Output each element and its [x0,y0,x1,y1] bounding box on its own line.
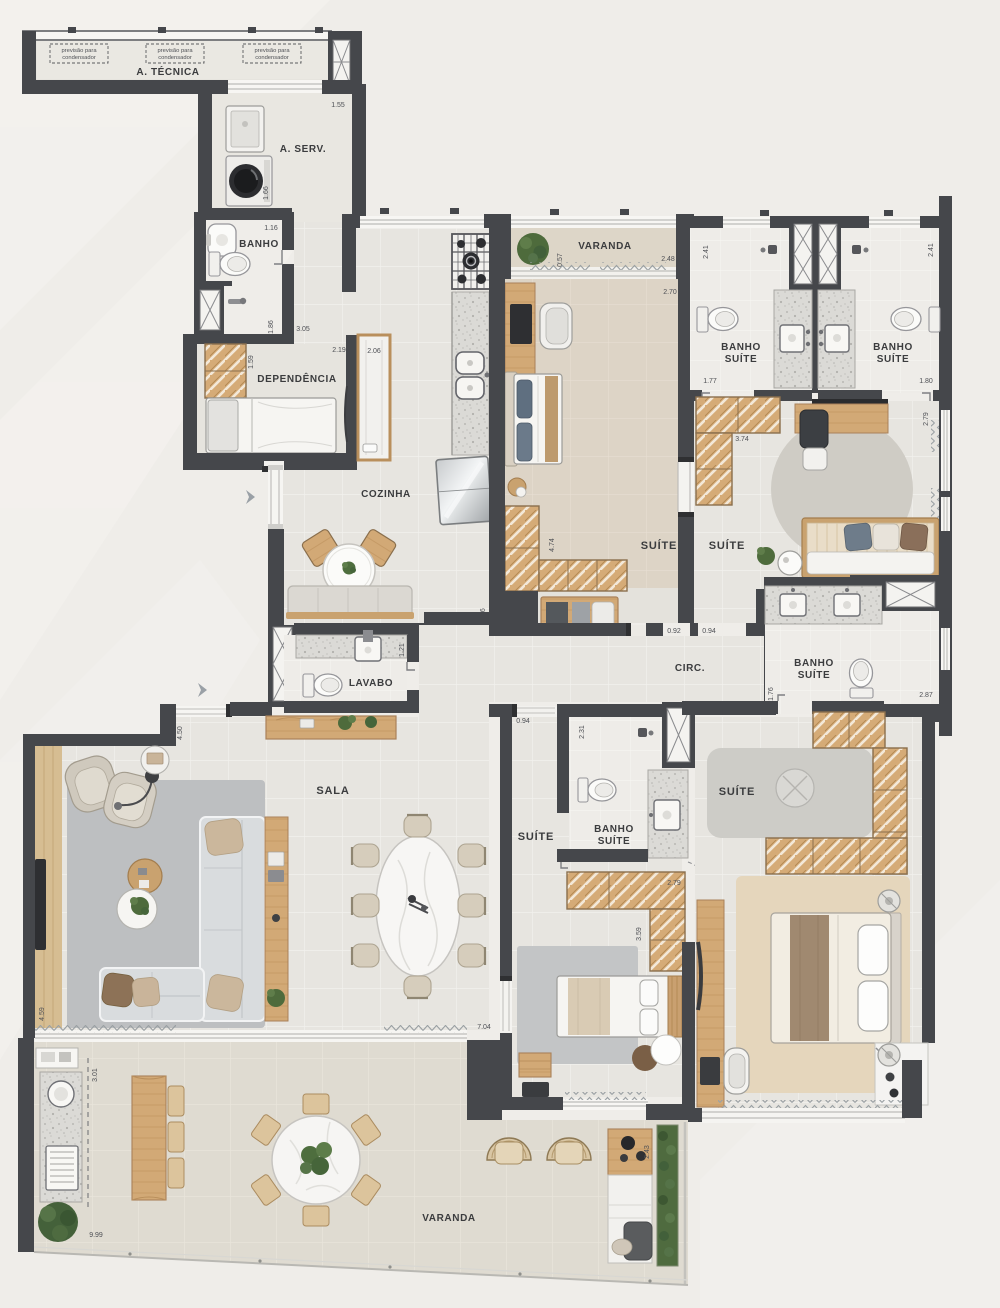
svg-text:2.41: 2.41 [703,245,710,259]
svg-text:SUÍTE: SUÍTE [798,668,830,681]
svg-text:0.92: 0.92 [667,628,681,635]
svg-text:4.50: 4.50 [177,726,184,740]
svg-text:1.66: 1.66 [263,186,270,200]
svg-text:1.21: 1.21 [399,643,406,657]
svg-text:3.05: 3.05 [296,326,310,333]
svg-text:BANHO: BANHO [794,658,834,669]
svg-text:0.94: 0.94 [516,718,530,725]
svg-text:2.19: 2.19 [332,347,346,354]
svg-text:SUÍTE: SUÍTE [641,539,677,552]
svg-text:SUÍTE: SUÍTE [877,352,909,365]
svg-text:SALA: SALA [316,785,349,797]
svg-text:COZINHA: COZINHA [361,489,411,500]
svg-text:0.94: 0.94 [702,628,716,635]
svg-text:2.70: 2.70 [663,289,677,296]
svg-text:CIRC.: CIRC. [675,663,705,674]
svg-text:2.87: 2.87 [919,692,933,699]
svg-text:3.59: 3.59 [636,927,643,941]
svg-text:1.77: 1.77 [703,378,717,385]
svg-text:2.31: 2.31 [579,725,586,739]
svg-text:1.55: 1.55 [331,102,345,109]
svg-text:SUÍTE: SUÍTE [518,830,554,843]
svg-text:7.04: 7.04 [477,1024,491,1031]
svg-text:9.99: 9.99 [89,1232,103,1239]
svg-text:condensador: condensador [62,55,96,61]
svg-text:SUÍTE: SUÍTE [598,834,630,847]
svg-text:1.80: 1.80 [919,378,933,385]
svg-text:4.59: 4.59 [39,1007,46,1021]
svg-text:condensador: condensador [158,55,192,61]
svg-text:2.41: 2.41 [928,243,935,257]
svg-text:LAVABO: LAVABO [349,678,393,689]
svg-text:1.76: 1.76 [768,687,775,701]
svg-text:2.79: 2.79 [667,880,681,887]
svg-text:BANHO: BANHO [873,342,913,353]
svg-text:1.59: 1.59 [248,355,255,369]
svg-text:1.86: 1.86 [268,320,275,334]
svg-text:previsão para: previsão para [61,48,97,54]
svg-text:BANHO: BANHO [721,342,761,353]
svg-text:DEPENDÊNCIA: DEPENDÊNCIA [257,372,336,385]
svg-text:2.48: 2.48 [661,256,675,263]
svg-text:previsão para: previsão para [157,48,193,54]
svg-text:2.43: 2.43 [644,1145,651,1159]
svg-text:previsão para: previsão para [254,48,290,54]
svg-text:A. TÉCNICA: A. TÉCNICA [136,65,199,78]
svg-text:4.74: 4.74 [549,538,556,552]
svg-text:BANHO: BANHO [594,824,634,835]
svg-text:2.79: 2.79 [923,412,930,426]
svg-text:SUÍTE: SUÍTE [725,352,757,365]
svg-text:A. SERV.: A. SERV. [280,144,327,155]
svg-text:VARANDA: VARANDA [422,1213,475,1224]
svg-text:SUÍTE: SUÍTE [709,539,745,552]
svg-text:1.16: 1.16 [264,225,278,232]
svg-text:3.74: 3.74 [735,436,749,443]
svg-text:VARANDA: VARANDA [578,241,631,252]
svg-text:SUÍTE: SUÍTE [719,785,755,798]
svg-text:condensador: condensador [255,55,289,61]
svg-text:3.01: 3.01 [92,1068,99,1082]
svg-text:2.06: 2.06 [367,348,381,355]
svg-text:BANHO: BANHO [239,239,279,250]
